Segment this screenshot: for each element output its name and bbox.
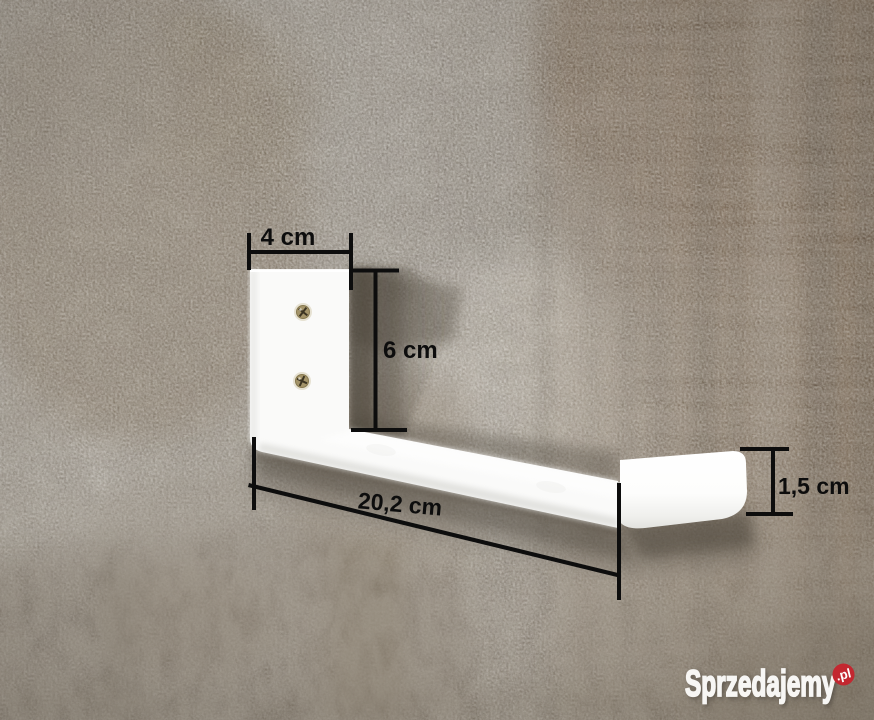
- svg-text:4 cm: 4 cm: [261, 224, 316, 251]
- svg-text:Sprzedajemy: Sprzedajemy: [685, 663, 836, 704]
- svg-text:1,5 cm: 1,5 cm: [778, 473, 850, 499]
- svg-text:6 cm: 6 cm: [383, 337, 438, 364]
